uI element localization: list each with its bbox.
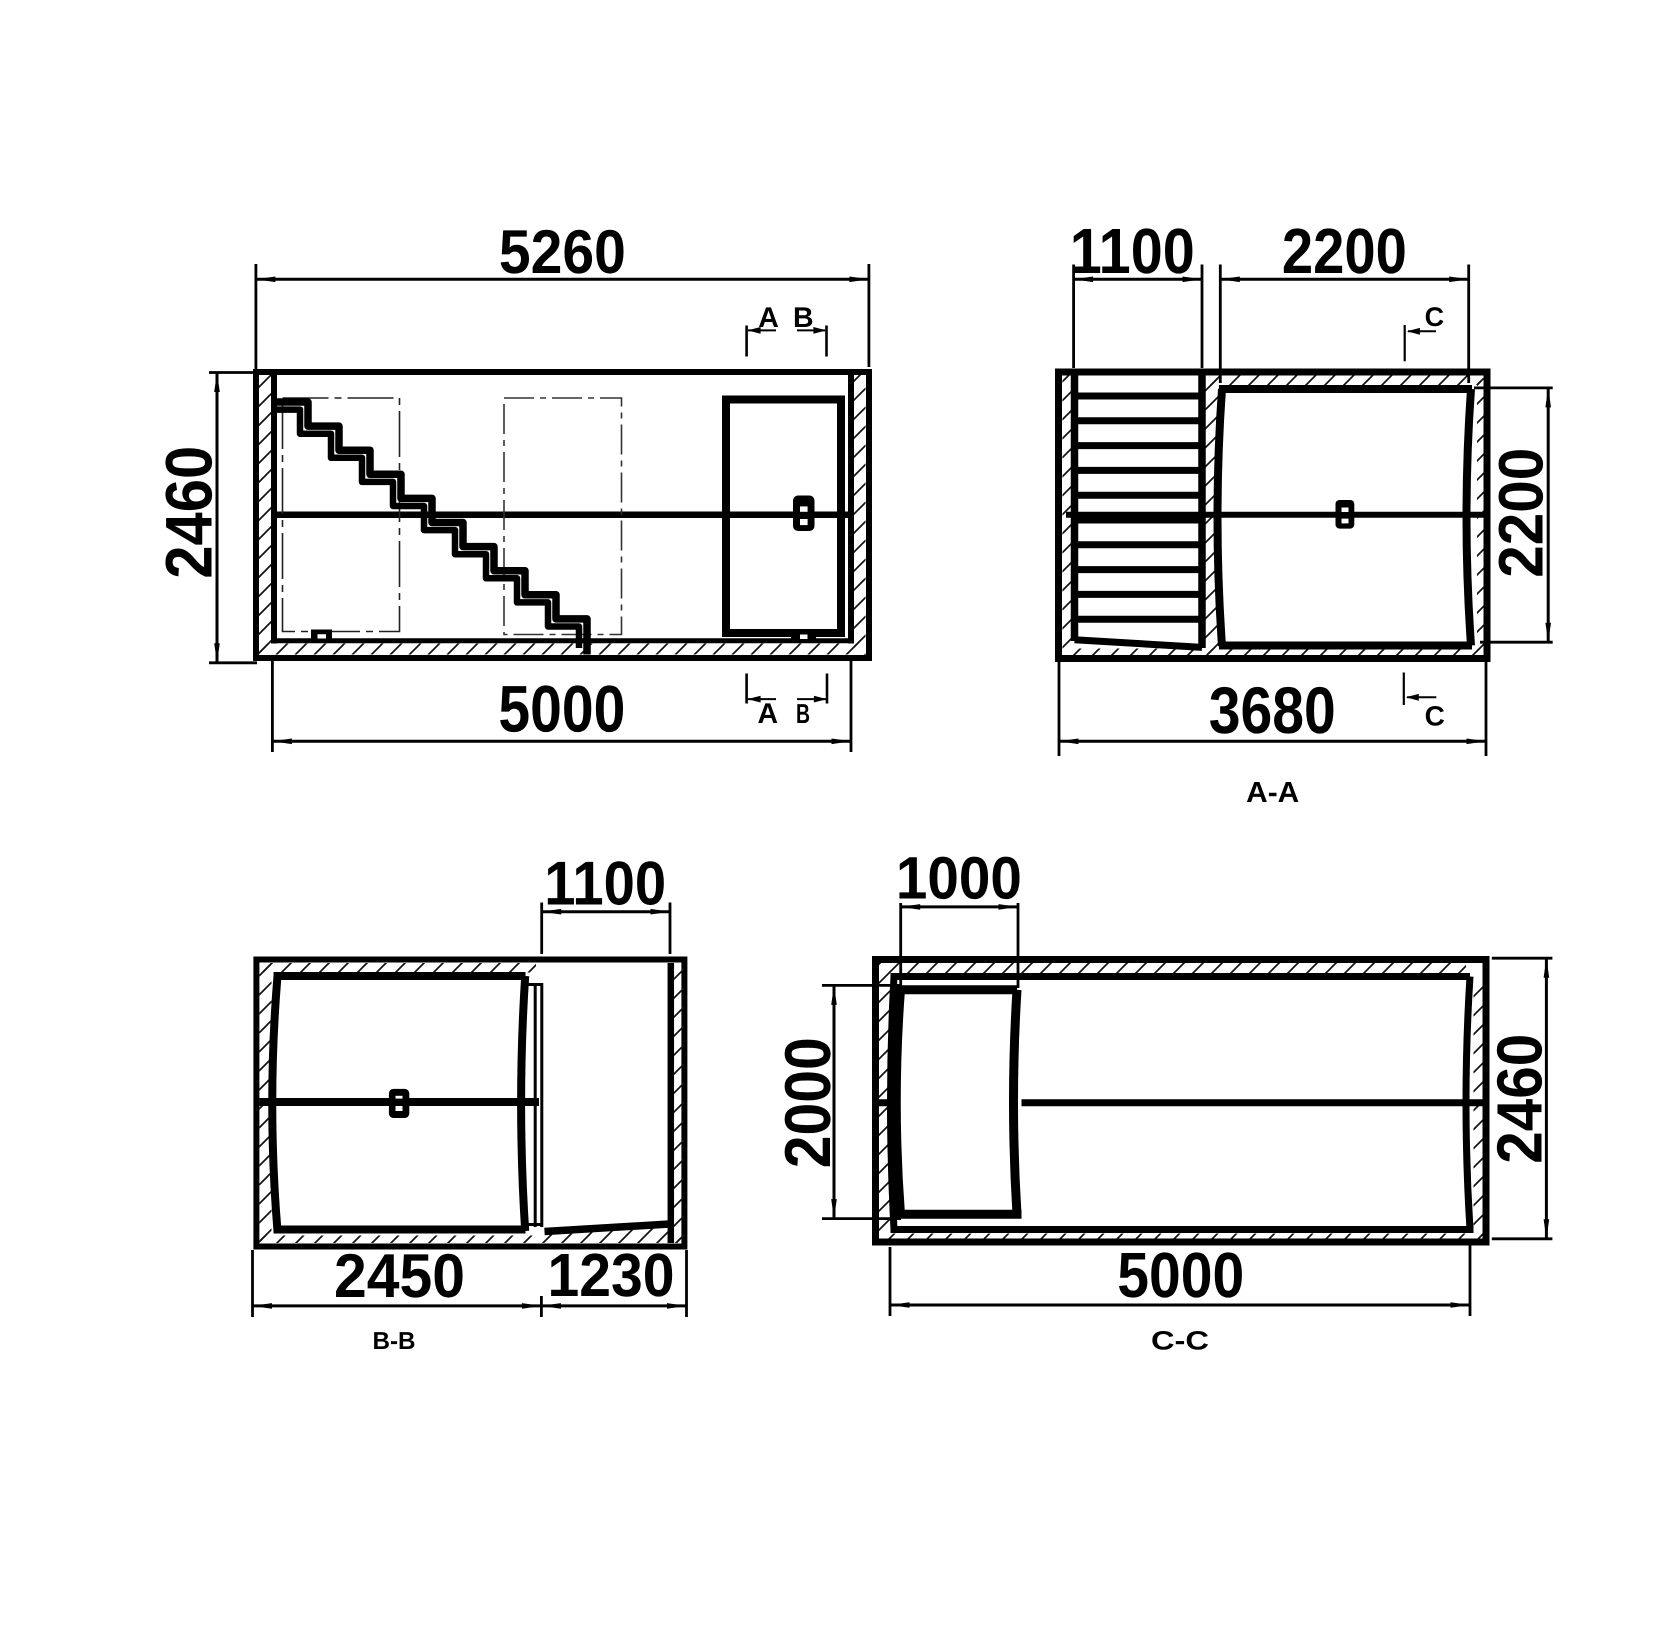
svg-text:A: A bbox=[758, 302, 779, 334]
svg-text:2200: 2200 bbox=[1282, 215, 1407, 287]
svg-text:3680: 3680 bbox=[1209, 673, 1336, 747]
svg-text:5260: 5260 bbox=[499, 218, 626, 287]
svg-text:5000: 5000 bbox=[498, 672, 625, 746]
svg-text:C: C bbox=[1425, 302, 1445, 332]
svg-text:C: C bbox=[1425, 701, 1445, 732]
svg-text:A: A bbox=[758, 698, 779, 730]
svg-text:1100: 1100 bbox=[544, 850, 666, 919]
svg-text:B-B: B-B bbox=[373, 1328, 416, 1355]
svg-text:2450: 2450 bbox=[334, 1242, 465, 1311]
svg-text:1000: 1000 bbox=[896, 845, 1022, 912]
svg-text:B: B bbox=[796, 698, 810, 729]
svg-text:2460: 2460 bbox=[1484, 1034, 1556, 1164]
svg-text:1100: 1100 bbox=[1070, 215, 1195, 287]
svg-text:2460: 2460 bbox=[152, 446, 226, 579]
svg-text:C-C: C-C bbox=[1151, 1326, 1209, 1356]
svg-text:2000: 2000 bbox=[771, 1037, 844, 1168]
svg-text:2200: 2200 bbox=[1487, 448, 1557, 578]
svg-text:A-A: A-A bbox=[1246, 777, 1299, 809]
svg-text:1230: 1230 bbox=[548, 1241, 675, 1309]
svg-text:5000: 5000 bbox=[1117, 1239, 1244, 1311]
svg-text:B: B bbox=[793, 302, 814, 334]
